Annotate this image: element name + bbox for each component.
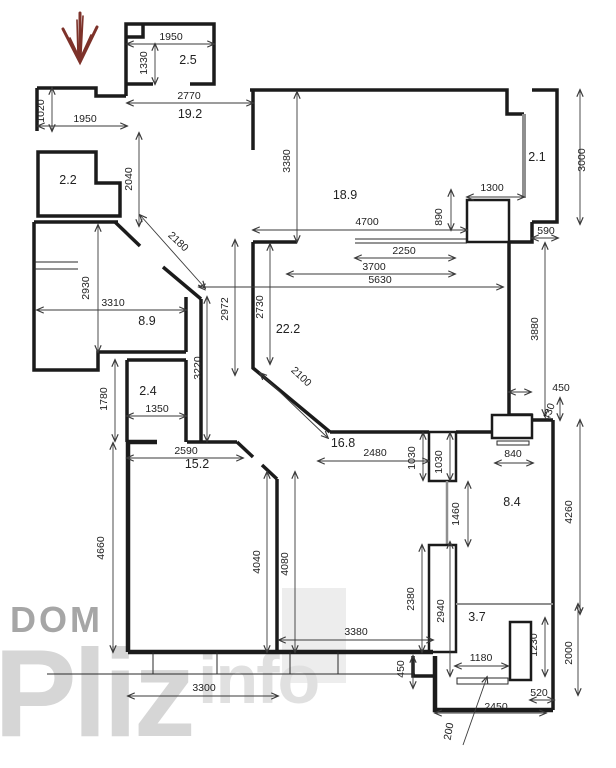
dimension-label: 3310: [101, 297, 125, 309]
dimension-label: 3300: [192, 682, 216, 694]
room-area-label: 8.9: [138, 314, 155, 328]
dimension-label: 1180: [470, 652, 493, 664]
room-area-label: 2.2: [59, 173, 76, 187]
dimension-label: 4660: [95, 536, 107, 560]
floor-plan: DOM Pliz info: [0, 0, 616, 768]
dimension-label: 3380: [344, 626, 368, 638]
dimension-label: 4260: [563, 500, 575, 524]
dimension-label: 1460: [450, 502, 462, 526]
dimension-label: 2972: [219, 297, 231, 321]
labels: 1950133027701020195020402180293033103220…: [35, 31, 588, 741]
dimension-label: 2040: [123, 167, 135, 191]
room-area-label: 22.2: [276, 322, 300, 336]
dimension-label: 2380: [405, 587, 417, 611]
room-area-label: 15.2: [185, 457, 209, 471]
dimension-label: 2770: [177, 90, 201, 102]
dimension-label: 1300: [480, 182, 504, 194]
dimension-label: 430: [541, 402, 558, 423]
dimension-label: 1230: [528, 633, 540, 657]
dimension-label: 200: [442, 722, 457, 741]
room-area-label: 18.9: [333, 188, 357, 202]
dimension-lines: [37, 44, 580, 745]
dimension-label: 3380: [281, 149, 293, 173]
dimension-label: 3700: [362, 261, 386, 273]
dimension-label: 4700: [355, 216, 379, 228]
dimension-label: 450: [395, 660, 407, 678]
dimension-label: 5630: [368, 274, 392, 286]
dimension-label: 3000: [576, 148, 588, 172]
dimension-label: 2590: [174, 445, 198, 457]
dimension-label: 2730: [254, 295, 266, 319]
dimension-label: 1030: [406, 446, 418, 470]
dimension-label: 1030: [433, 450, 445, 474]
dimension-label: 4080: [279, 552, 291, 576]
dimension-label: 1950: [159, 31, 183, 43]
dimension-label: 450: [552, 382, 570, 394]
dimension-label: 2000: [563, 641, 575, 665]
room-area-label: 19.2: [178, 107, 202, 121]
dimension-label: 520: [530, 687, 548, 699]
entrance-arrow-icon: [63, 13, 97, 62]
room-area-label: 2.5: [179, 53, 196, 67]
dimension-label: 1350: [145, 403, 169, 415]
dimension-label: 890: [433, 208, 445, 226]
dimension-label: 1780: [98, 387, 110, 411]
dimension-label: 1020: [35, 99, 47, 123]
dimension-label: 1950: [73, 113, 97, 125]
dimension-label: 2940: [435, 599, 447, 623]
dimension-label: 3220: [192, 356, 204, 380]
floor-plan-canvas: 1950133027701020195020402180293033103220…: [0, 0, 616, 768]
room-area-label: 2.4: [139, 384, 156, 398]
room-area-label: 3.7: [468, 610, 485, 624]
dimension-label: 2480: [363, 447, 387, 459]
dimension-label: 3880: [529, 317, 541, 341]
dimension-label: 2250: [392, 245, 416, 257]
dimension-label: 2450: [484, 701, 508, 713]
dimension-label: 840: [504, 448, 522, 460]
dimension-label: 2930: [80, 276, 92, 300]
dimension-label: 4040: [251, 550, 263, 574]
room-area-label: 2.1: [528, 150, 545, 164]
room-area-label: 16.8: [331, 436, 355, 450]
dimension-label: 2100: [288, 364, 313, 389]
dimension-label: 2180: [165, 229, 190, 254]
dimension-label: 590: [537, 225, 555, 237]
room-area-label: 8.4: [503, 495, 520, 509]
dimension-label: 1330: [138, 51, 150, 75]
